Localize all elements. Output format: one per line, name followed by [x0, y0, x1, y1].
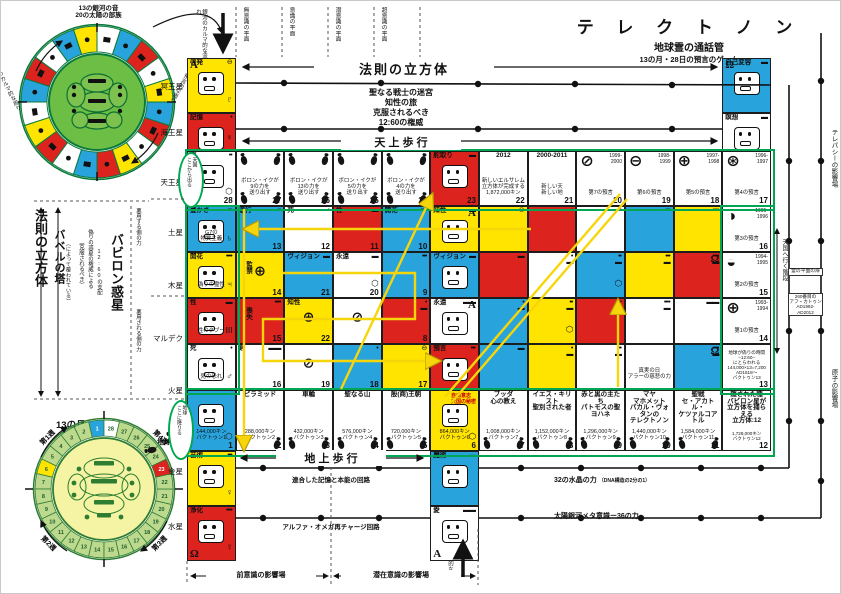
cell-number: 28 — [224, 196, 233, 205]
board-cell-r1c11[interactable]: 1995- 1996◑第3の預言16 — [722, 206, 771, 252]
cell-kioku[interactable]: 記憶•♆ — [187, 113, 236, 151]
prophecy-wheel-icon: ⊕ — [726, 301, 739, 317]
mayan-number-icon: •••• — [275, 300, 281, 306]
left-label-rule1: （克服されるべき） — [77, 239, 85, 288]
planet-label: 天王星 — [121, 177, 183, 188]
cell-subtext: 真実の日 アラーの慈悲の力 — [627, 368, 672, 380]
board-cell-r3c9[interactable]: •••• ▬ — [625, 298, 674, 344]
exit-oval: 天国 ここから出る — [178, 152, 204, 208]
cell-label: ヴィジョン — [433, 254, 466, 261]
prophecy-wheel-icon: ⊛ — [726, 154, 739, 170]
svg-text:24: 24 — [153, 455, 160, 461]
cell-number: 22 — [516, 196, 525, 205]
plane-label: 意識の平面 — [288, 7, 294, 59]
board-cell-r2c9[interactable]: ••• ▬ — [625, 252, 674, 298]
metaconscious-label: 太陽銀河メタ意識ー36の力 — [554, 511, 639, 521]
cell-number: 16 — [759, 242, 768, 251]
board-cell-r4c6[interactable]: ▬ — [479, 344, 528, 390]
board-cell-r0c6[interactable]: 2012新しいエルサレム 立方体が完成する 1,872,000キン22 — [479, 151, 528, 206]
wheel-icon: ⊘ — [351, 309, 363, 326]
cell-majutsu[interactable]: 魔術▬ — [430, 451, 479, 506]
warrior-labyrinth-text: 聖なる戦士の迷宮 知性の旅 克服されるべき 12:60の権威 — [311, 88, 491, 128]
left-label-rule3: 12:60の支配 — [95, 249, 103, 295]
year-range: 1993- 1994 — [755, 301, 768, 312]
seal-glyph-icon — [198, 72, 224, 95]
planet-symbol-icon: ♂ — [226, 371, 232, 381]
board-cell-r3c1[interactable]: 喪失••••15 — [236, 298, 285, 344]
mayan-number-icon: •• — [277, 208, 280, 214]
cell-number: 11 — [370, 242, 378, 251]
cell-label: 預言 — [433, 346, 446, 353]
mayan-number-icon: ▬ — [323, 254, 329, 260]
plane-label: 無意識の平面 — [242, 7, 248, 59]
cell-number: 1 — [228, 441, 232, 450]
alpha-omega-letter: A — [468, 207, 476, 219]
board-cell-r4c11[interactable]: 地球が偽りの時間 −12:60− にとらわれる 144,000×13=7,200… — [722, 344, 771, 390]
board-cell-r2c7[interactable]: • ▬ — [528, 252, 577, 298]
preconscious-field-label: 前意識の影響場 — [206, 570, 316, 580]
cell-number: 15 — [759, 288, 768, 297]
seal-glyph-icon — [198, 465, 224, 488]
board-cell-r1c7[interactable]: • — [528, 206, 577, 252]
board-cell-r3c11[interactable]: 1993- 1994⊕第1の預言14 — [722, 298, 771, 344]
board-cell-r0c10[interactable]: 1997- 1998⊕第5の預言18 — [674, 151, 723, 206]
page-subtitle2: 13の月・28日の預言のゲーム — [563, 54, 815, 65]
cell-number: 15 — [272, 334, 281, 343]
mayan-number-icon: ▬▬ — [268, 346, 280, 352]
seal-glyph-icon — [198, 520, 224, 543]
planet-symbol-icon: ☿ — [226, 542, 232, 552]
cell-geijutsu[interactable]: 芸術•••♀ — [187, 451, 236, 506]
board-cell-r2c3[interactable]: 永遠▬⬡20 — [333, 252, 382, 298]
footprint-icon — [288, 155, 296, 165]
mayan-number-icon: •••• ▬ — [664, 300, 670, 311]
board-cell-r1c8[interactable]: •• — [576, 206, 625, 252]
board-cell-r0c4[interactable]: ボロン・イクが 4の力を 送り出す24 — [382, 151, 431, 206]
cell-label: 魔術 — [433, 453, 446, 460]
prophecy-wheel-icon: ⊖ — [629, 154, 642, 170]
cell-number: 14 — [759, 334, 768, 343]
cell-label: 永遠 — [336, 254, 349, 261]
planet-symbol-icon: ♀ — [226, 487, 232, 497]
mayan-number-icon: • — [328, 208, 329, 214]
board-cell-r5c11[interactable]: 隠された種 バビロン星が 立方体を捕らえる 立方体:121,728,000キン … — [722, 390, 771, 451]
svg-text:14: 14 — [94, 548, 101, 554]
mayan-number-icon: • — [230, 115, 231, 121]
board-cell-r5c3[interactable]: 聖なる山576,000キン バクトゥン44 — [333, 390, 382, 451]
seal-glyph-icon — [442, 520, 468, 543]
board-cell-r4c8[interactable]: •• ▬ — [576, 344, 625, 390]
mayan-number-icon: ⊖ — [519, 208, 524, 214]
footprint-icon — [337, 155, 345, 165]
cell-label: 性 — [336, 208, 343, 215]
board-cell-r4c2[interactable]: ⊘19 — [284, 344, 333, 390]
footprint-icon — [240, 155, 248, 165]
board-cell-r5c6[interactable]: ブッダ 心の教え1,008,000キン バクトゥン77 — [479, 390, 528, 451]
board-cell-r2c6[interactable]: ▬ — [479, 252, 528, 298]
prophecy-wheel-icon: ⊕ — [678, 154, 691, 170]
board-cell-r0c1[interactable]: ボロン・イクが 9の力を 送り出す27 — [236, 151, 285, 206]
cell-vertical-label: 監禁 — [243, 261, 253, 274]
cell-number: 14 — [272, 288, 281, 297]
svg-text:27: 27 — [121, 429, 127, 435]
board-cell-r2c1[interactable]: 監禁⊕14 — [236, 252, 285, 298]
alpha-omega-letter: A — [190, 59, 198, 71]
board-cell-r2c10[interactable]: •••• ▬Ω — [674, 252, 723, 298]
cell-number: 18 — [370, 380, 379, 389]
wheel-icon: ⊕ — [254, 263, 266, 280]
planet-symbol-icon: ΙΙΙ — [226, 325, 233, 335]
cell-keihatsu[interactable]: 啓発⊖A♇ — [187, 58, 236, 113]
cell-subtext: 新しい天 新しい地 — [530, 184, 575, 196]
year-range: 1995- 1996 — [755, 209, 768, 220]
cube-of-law-arrow-label: 法則の立方体 — [314, 59, 494, 78]
left-label-babel-note: （によって覆われている） — [65, 241, 72, 303]
cell-label: 芸術 — [190, 453, 203, 460]
memory-circuit-label: 連合した記憶と本能の回路 — [236, 474, 426, 484]
board-cell-r2c11[interactable]: 1994- 1995◒第2の預言15 — [722, 252, 771, 298]
mayan-number-icon: ▬ — [518, 346, 524, 352]
svg-text:22: 22 — [162, 480, 168, 486]
alpha-omega-letter: Ω — [190, 548, 199, 560]
subliminal-field-label: 潜在意識の影響場 — [341, 570, 461, 580]
svg-text:9: 9 — [45, 507, 48, 513]
board-cell-r0c5[interactable]: 舵取り▬23 — [430, 151, 479, 206]
cell-number: 17 — [418, 380, 427, 389]
board-cell-r5c4[interactable]: 殷(商)王朝720,000キン バクトゥン55 — [382, 390, 431, 451]
seal-glyph-icon — [442, 312, 468, 335]
mayan-number-icon: ▬▬ — [463, 508, 475, 514]
atom-field-label: 原子の影響場 — [828, 369, 838, 408]
svg-text:10: 10 — [49, 519, 55, 525]
cell-label: 2012 — [481, 153, 526, 160]
recharge-circuit-label: アルファ・オメガ再チャージ回路 — [236, 521, 426, 531]
board-cell-r3c6[interactable]: • ▬ — [479, 298, 528, 344]
board-cell-r5c0[interactable]: 144,000キン バクトゥン1⬡1 — [187, 390, 236, 451]
left-label-rule2: 偽りの惑星の権威による — [86, 229, 94, 288]
board-cell-r5c10[interactable]: 聖戦 セ・アカトル・ ケツァルコアトル1,584,000キン バクトゥン1111 — [674, 390, 723, 451]
board-cell-r4c4[interactable]: ⊖17 — [382, 344, 431, 390]
year-range: 1999- 2000 — [609, 154, 622, 165]
left-label-cube: 法則の立方体 — [31, 209, 50, 399]
cell-label: 死 — [190, 346, 197, 353]
board-cell-r3c10[interactable]: ▬▬ — [674, 298, 723, 344]
karmic-flow-label: 銀河のカルマ的な流れ — [195, 9, 207, 59]
svg-text:28: 28 — [108, 426, 114, 432]
board-cell-r1c5[interactable]: 知性▬A — [430, 206, 479, 252]
mayan-number-icon: ••• — [227, 453, 231, 459]
seal-glyph-icon — [198, 404, 224, 427]
board-cell-r2c5[interactable]: ヴィジョン▬ — [430, 252, 479, 298]
board-cell-r4c5[interactable]: 預言••• — [430, 344, 479, 390]
cell-label: ピラミッド — [238, 392, 283, 399]
planet-label: 火星 — [121, 385, 183, 396]
board-cell-r3c0[interactable]: 性▬性のタブーΙΙΙ — [187, 298, 236, 344]
board-cell-r0c11[interactable]: 1996- 1997⊛第4の預言17 — [722, 151, 771, 206]
mayan-number-icon: ▬ — [761, 115, 767, 121]
board-cell-r1c3[interactable]: 性▬11 — [333, 206, 382, 252]
board-cell-r1c9[interactable]: ••• — [625, 206, 674, 252]
prophecy-wheel-icon: ◒ — [726, 255, 736, 271]
board-cell-r2c8[interactable]: •• ▬⬡ — [576, 252, 625, 298]
board-cell-r2c4[interactable]: •••9 — [382, 252, 431, 298]
year-range: 1997- 1998 — [707, 154, 720, 165]
board-cell-r4c1[interactable]: 剣▬▬16 — [236, 344, 285, 390]
alpha-omega-letter: A — [433, 548, 441, 560]
telektonon-board: テ レ ク ト ノ ン 地球霊の通話管 13の月・28日の預言のゲーム 13の銀… — [0, 0, 841, 594]
board-cell-r3c8[interactable]: ••• ▬ — [576, 298, 625, 344]
cell-number: 21 — [564, 196, 573, 205]
planet-symbol-icon: ♆ — [226, 132, 232, 142]
board-cell-r1c0[interactable]: 豊かさ•••G7の 物質主義♄ — [187, 206, 236, 252]
planet-label: 冥王星 — [121, 81, 183, 92]
footprint-icon — [370, 155, 378, 165]
alpha-omega-letter: A — [468, 299, 476, 311]
alpha-omega-letter: Ω — [711, 345, 720, 357]
cell-label: 遂行 — [239, 208, 252, 215]
mayan-number-icon: •••• — [421, 208, 427, 214]
svg-text:15: 15 — [108, 548, 114, 554]
board-cell-r1c6[interactable]: ⊖ — [479, 206, 528, 252]
cell-number: 20 — [370, 288, 379, 297]
cell-number: 6 — [472, 441, 476, 450]
board-cell-r4c9[interactable]: 真実の日 アラーの慈悲の力 — [625, 344, 674, 390]
alpha-omega-letter: Ω — [725, 59, 734, 71]
svg-text:7: 7 — [42, 480, 45, 486]
svg-text:2: 2 — [82, 429, 85, 435]
crystal-power-label: 32の水晶の力 （DNA構造の2分の1） — [554, 475, 650, 485]
board-cell-r5c5[interactable]: 自由意志 天国の秘密864,000キン バクトゥン6⬡6 — [430, 390, 479, 451]
board-cell-r3c5[interactable]: 永遠▬▬A — [430, 298, 479, 344]
cell-label: 剣 — [239, 346, 246, 353]
seal-glyph-icon — [442, 404, 468, 427]
mayan-number-icon: • — [571, 208, 572, 214]
footprint-icon — [386, 155, 394, 165]
footprint-icon — [273, 155, 281, 165]
upper-wheel-caption: 13の銀河の音 20の太陽の部族 — [36, 5, 161, 19]
board-cell-r3c7[interactable]: •• ▬⬡ — [528, 298, 577, 344]
spirit-door-label: 霊の平面の扉 — [788, 268, 823, 276]
board-cell-r4c10[interactable]: •••• ▬Ω — [674, 344, 723, 390]
cell-label: 聖なる山 — [335, 392, 380, 399]
planet-label: 土星 — [121, 227, 183, 238]
planet-symbol-icon: ♇ — [226, 94, 232, 104]
board-cell-r3c2[interactable]: 知性⊕22 — [284, 298, 333, 344]
telepathy-field-label: テレパシーの影響場 — [828, 129, 838, 188]
cell-number: 17 — [759, 196, 768, 205]
mayan-number-icon: ▬ — [226, 300, 232, 306]
seal-glyph-icon — [442, 358, 468, 381]
cell-label: ヴィジョン — [287, 254, 320, 261]
board-cell-r4c0[interactable]: 死•死の恐れ♂ — [187, 344, 236, 390]
cell-label: 2000-2011 — [530, 153, 575, 160]
cell-subtext: 新しいエルサレム 立方体が完成する 1,872,000キン — [481, 178, 526, 196]
planet-symbol-icon: ⬡ — [615, 278, 622, 289]
mayan-number-icon: ▬ — [372, 254, 378, 260]
cell-subtext: 地球が偽りの時間 −12:60− にとらわれる 144,000×13=7,200… — [724, 350, 769, 380]
mayan-number-icon: ••• ▬ — [615, 300, 621, 311]
mayan-number-icon: • ▬ — [566, 254, 572, 265]
cell-subtext: 1,728,000キン バクトゥン12 — [724, 431, 769, 441]
mayan-number-icon: ▬ — [469, 254, 475, 260]
cell-number: 19 — [321, 380, 330, 389]
left-label-misuse-upper: 悪用する側の力 — [134, 208, 142, 246]
svg-text:5: 5 — [51, 455, 54, 461]
svg-text:8: 8 — [42, 494, 45, 500]
cell-label: 隠された種 バビロン星が 立方体を捕らえる 立方体:12 — [724, 392, 769, 425]
cell-label: マヤ マホメット パカル・ヴォタンの テレクトノン — [627, 392, 672, 425]
cell-label: 浄化 — [190, 508, 203, 515]
mayan-number-icon: •• ▬ — [615, 346, 621, 357]
mayan-number-icon: •• — [229, 153, 232, 159]
mayan-number-icon: •• ▬ — [615, 254, 621, 265]
cell-label: 知性 — [287, 300, 300, 307]
board-cell-r1c2[interactable]: 死•12 — [284, 206, 333, 252]
svg-text:17: 17 — [133, 539, 139, 545]
board-cell-r5c2[interactable]: 車輪432,000キン バクトゥン33 — [284, 390, 333, 451]
mayan-number-icon: ••• — [227, 208, 231, 214]
cell-meiso[interactable]: 瞑想▬ — [722, 113, 771, 151]
cell-label: 性 — [190, 300, 197, 307]
board-cell-r1c1[interactable]: 遂行••13 — [236, 206, 285, 252]
board-cell-r1c4[interactable]: 開花••••10 — [382, 206, 431, 252]
cell-number: 19 — [662, 196, 671, 205]
cell-number: 12 — [321, 242, 330, 251]
board-cell-r0c7[interactable]: 2000-2011新しい天 新しい地21 — [528, 151, 577, 206]
cell-number: 20 — [613, 196, 622, 205]
mayan-number-icon: ••• — [665, 208, 669, 214]
left-label-babylon: バビロン惑星 — [107, 233, 126, 393]
cell-label: 知性 — [433, 208, 446, 215]
cell-label: 瞑想 — [725, 115, 738, 122]
cell-number: 13 — [759, 380, 768, 389]
cell-label: イエス・キリスト 聖別された者 — [530, 392, 575, 412]
mayan-number-icon: ⊖ — [227, 60, 232, 66]
cell-label: 永遠 — [433, 300, 446, 307]
board-cell-r5c1[interactable]: ピラミッド288,000キン バクトゥン22 — [236, 390, 285, 451]
board-cell-r5c9[interactable]: マヤ マホメット パカル・ヴォタンの テレクトノン1,440,000キン バクト… — [625, 390, 674, 451]
galactic-tribes-wheel — [18, 23, 176, 181]
board-cell-r4c7[interactable]: • ▬ — [528, 344, 577, 390]
wheel-icon: ⊕ — [303, 309, 315, 326]
cell-number: 21 — [321, 288, 330, 297]
svg-text:13: 13 — [81, 545, 87, 551]
board-cell-r5c8[interactable]: 赤と黒の主たち パトモスの聖ヨハネ1,296,000キン バクトゥン99 — [576, 390, 625, 451]
board-cell-r2c0[interactable]: 開花••••偽りの霊性♃ — [187, 252, 236, 298]
cell-ai[interactable]: 愛▬▬A — [430, 506, 479, 561]
cell-red-note: 自由意志 天国の秘密 — [451, 394, 477, 405]
mayan-number-icon: ▬ — [518, 254, 524, 260]
planet-symbol-icon: ♃ — [226, 279, 232, 289]
title-block: テ レ ク ト ノ ン 地球霊の通話管 13の月・28日の預言のゲーム — [563, 13, 815, 65]
cell-label: 死 — [287, 208, 294, 215]
mayan-number-icon: • ▬ — [566, 346, 572, 357]
cell-number: 18 — [710, 196, 719, 205]
mayan-number-icon: ▬ — [372, 208, 378, 214]
mayan-number-icon: ••• — [422, 254, 426, 260]
cell-label: ブッダ 心の教え — [481, 392, 526, 405]
earth-walk-label: 地 上 歩 行 — [276, 450, 386, 466]
thirteen-moon-wheel: 1234567891011121314151617181920212223242… — [19, 405, 189, 575]
cell-label: 記憶 — [190, 115, 203, 122]
heaven-walk-label: 天 上 歩 行 — [341, 134, 461, 150]
cell-number: 8 — [423, 334, 427, 343]
left-label-misuse-lower: 悪用される側の力 — [134, 309, 142, 352]
mayan-number-icon: ▬▬ — [706, 300, 718, 306]
mayan-number-icon: • — [376, 346, 377, 352]
svg-text:3: 3 — [70, 435, 73, 441]
katun-box: 260番目の アフ・カトゥン AD1992- AD2012 — [788, 293, 823, 316]
prophecy-wheel-icon: ⊘ — [580, 154, 593, 170]
cell-number: 22 — [321, 334, 330, 343]
board-cell-r0c3[interactable]: ボロン・イクが 5の力を 送り出す25 — [333, 151, 382, 206]
mayan-number-icon: •••• — [713, 208, 719, 214]
cell-jiko[interactable]: 自己変容▬Ω — [722, 58, 771, 113]
board-cell-r0c8[interactable]: 1999- 2000⊘第7の預言20 — [576, 151, 625, 206]
planet-label: 水星 — [121, 521, 183, 532]
cell-label: 愛 — [433, 508, 440, 515]
svg-text:21: 21 — [162, 494, 168, 500]
cell-number: 12 — [759, 441, 768, 450]
planet-label: マルデク — [121, 333, 183, 344]
cell-number: 16 — [272, 380, 281, 389]
planet-label: 木星 — [121, 280, 183, 291]
mayan-number-icon: ▬ — [761, 60, 767, 66]
mayan-number-icon: ••• ▬ — [664, 254, 670, 265]
cell-joka[interactable]: 浄化••••Ω☿ — [187, 506, 236, 561]
cell-label: 車輪 — [286, 392, 331, 399]
mayan-number-icon: ⊖ — [421, 346, 426, 352]
prophecy-wheel-icon: ◑ — [726, 209, 736, 225]
cell-label: 開花 — [385, 208, 398, 215]
plane-label: 超意識の平面 — [380, 7, 386, 59]
cell-label: 開花 — [190, 254, 203, 261]
board-cell-r4c3[interactable]: •18 — [333, 344, 382, 390]
page-subtitle: 地球霊の通話管 — [563, 39, 815, 54]
svg-text:16: 16 — [121, 545, 127, 551]
mayan-number-icon: • — [230, 346, 231, 352]
mayan-number-icon: • ▬ — [420, 300, 426, 311]
cell-number: 9 — [423, 288, 427, 297]
svg-text:12: 12 — [68, 539, 74, 545]
svg-text:26: 26 — [133, 435, 139, 441]
cell-number: 10 — [418, 242, 427, 251]
board-cell-r2c2[interactable]: ヴィジョン▬21 — [284, 252, 333, 298]
alpha-omega-letter: Ω — [711, 253, 720, 265]
board-cell-r3c3[interactable]: ⊘ — [333, 298, 382, 344]
seal-glyph-icon — [442, 266, 468, 289]
cell-number: 23 — [467, 196, 476, 205]
cell-label: 殷(商)王朝 — [384, 392, 429, 399]
cell-number: 13 — [272, 242, 281, 251]
board-cell-r0c2[interactable]: ボロン・イクが 13の力を 送り出す26 — [284, 151, 333, 206]
board-cell-r0c9[interactable]: 1998- 1999⊖第6の預言19 — [625, 151, 674, 206]
board-cell-r1c10[interactable]: •••• — [674, 206, 723, 252]
enter-oval: 地球 ここに降りる — [168, 400, 194, 460]
board-cell-r3c4[interactable]: • ▬8 — [382, 298, 431, 344]
planet-symbol-icon: ♄ — [226, 233, 232, 243]
board-cell-r5c7[interactable]: イエス・キリスト 聖別された者1,152,000キン バクトゥン88 — [528, 390, 577, 451]
planet-label: 金星 — [121, 466, 183, 477]
plane-label: 潜意識の平面 — [334, 7, 340, 59]
seal-glyph-icon — [442, 165, 468, 188]
mayan-number-icon: ▬ — [469, 453, 475, 459]
wheel-icon: ⊘ — [303, 355, 315, 372]
mayan-number-icon: • ▬ — [518, 300, 524, 311]
year-range: 1998- 1999 — [658, 154, 671, 165]
cell-label: 赤と黒の主たち パトモスの聖ヨハネ — [578, 392, 623, 418]
planet-symbol-icon: ⬡ — [566, 324, 573, 335]
